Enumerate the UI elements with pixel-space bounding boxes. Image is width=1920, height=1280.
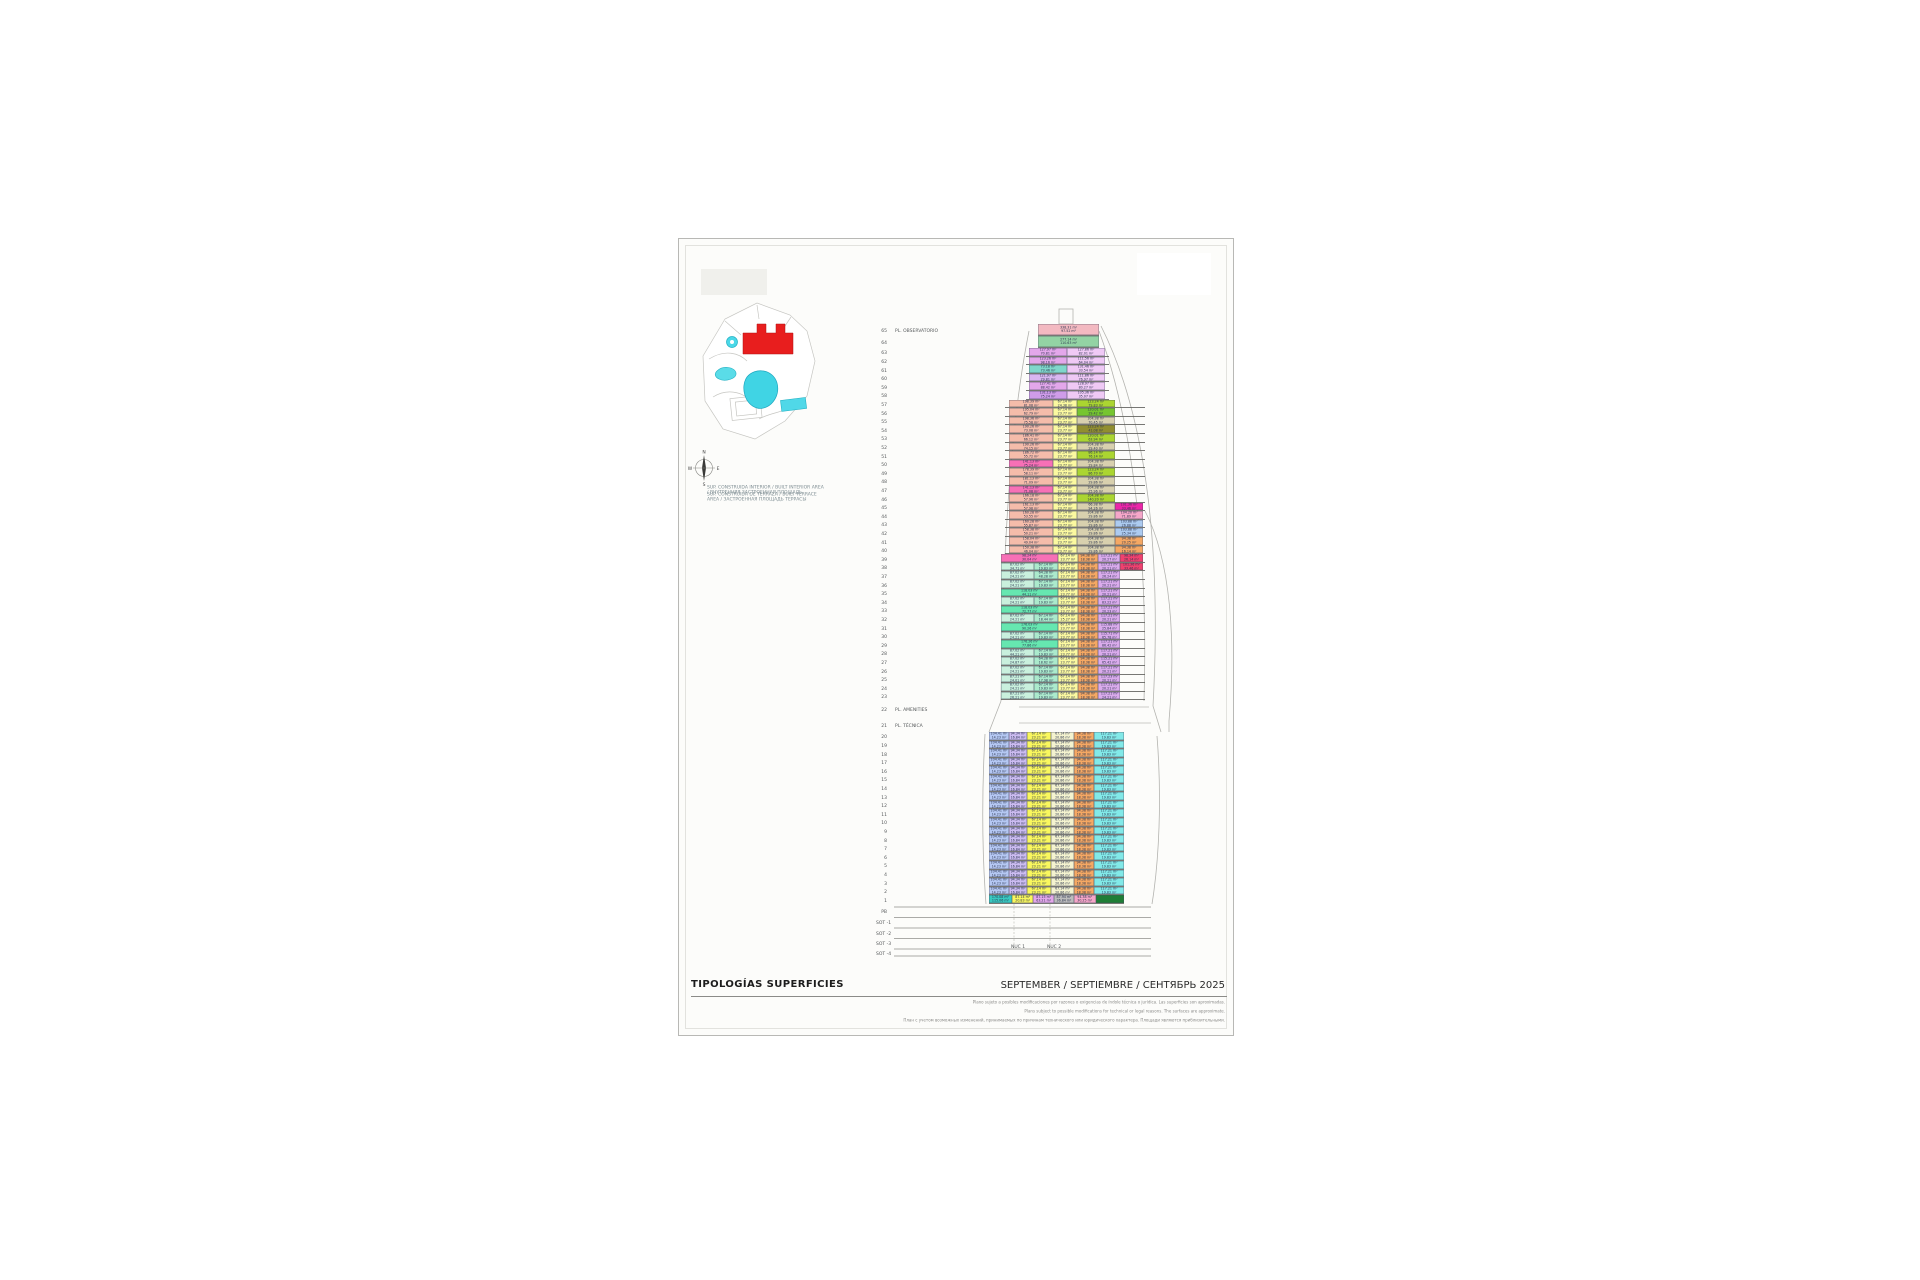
core-label: NUC 1 [1011,945,1025,950]
floor-number: 61 [876,368,887,373]
floor-number: 65 [876,329,887,334]
floor-number: 8 [876,838,887,843]
floor-number: 57 [876,402,887,407]
floor-number: 36 [876,583,887,588]
floor-number: 60 [876,377,887,382]
floor-number: 21 [876,724,887,729]
floor-number: 33 [876,609,887,614]
floor-number: 4 [876,872,887,877]
floor-number: 17 [876,761,887,766]
floor-number: PB [876,910,887,915]
floor-number: 3 [876,881,887,886]
floor-number: 1 [876,898,887,903]
floor-number: 46 [876,497,887,502]
floor-number: 9 [876,829,887,834]
floor-number: 64 [876,341,887,346]
floor-number: 15 [876,778,887,783]
sheet-date-title: SEPTEMBER / SEPTIEMBRE / СЕНТЯБРЬ 2025 [1001,980,1225,991]
floor-number: SOT -1 [876,921,887,926]
floor-number: 39 [876,557,887,562]
floor-number: 40 [876,549,887,554]
floor-number: 30 [876,635,887,640]
screenshot-canvas: { "sheet": { "title_left": "TIPOLOGÍAS S… [0,0,1920,1280]
floor-number: 25 [876,678,887,683]
floor-number: 34 [876,600,887,605]
floor-number: 12 [876,804,887,809]
floor-number: SOT -4 [876,952,887,957]
sheet-title: TIPOLOGÍAS SUPERFICIES [691,979,844,990]
floor-number: 31 [876,626,887,631]
floor-number: 6 [876,855,887,860]
floor-number: 28 [876,652,887,657]
floor-number: 13 [876,795,887,800]
floor-number: 51 [876,454,887,459]
floor-number: 18 [876,752,887,757]
floor-number: 58 [876,394,887,399]
floor-number: 5 [876,864,887,869]
floor-number: 53 [876,437,887,442]
floor-number: 56 [876,411,887,416]
floor-number: 54 [876,428,887,433]
floor-number: SOT -3 [876,942,887,947]
floor-number: 22 [876,708,887,713]
floor-number: 11 [876,812,887,817]
floor-number: 24 [876,686,887,691]
floor-tag: PL. OBSERVATORIO [895,329,938,334]
drawing-sheet: N S E W SUP. CONSTRUIDA INTERIOR / BUILT… [678,238,1234,1036]
floor-number: 38 [876,566,887,571]
floor-tag: PL. AMENITIES [895,708,927,713]
floor-tag: PL. TÉCNICA [895,724,923,729]
title-rule [691,996,1227,997]
floor-number: 48 [876,480,887,485]
floor-number: 26 [876,669,887,674]
floor-number: 45 [876,506,887,511]
floor-number: 20 [876,735,887,740]
floor-number: 42 [876,531,887,536]
disclaimer-line-es: Plano sujeto a posibles modificaciones p… [765,1000,1225,1005]
floor-number: 23 [876,695,887,700]
floor-number: 63 [876,351,887,356]
floor-label-column: 65PL. OBSERVATORIO6463626160595857565554… [679,239,1235,1037]
floor-number: 2 [876,890,887,895]
floor-number: 10 [876,821,887,826]
floor-number: 47 [876,488,887,493]
disclaimer-line-en: Plans subject to possible modifications … [765,1009,1225,1014]
floor-number: 41 [876,540,887,545]
floor-number: 55 [876,420,887,425]
floor-number: 27 [876,660,887,665]
floor-number: 44 [876,514,887,519]
disclaimer-line-ru: План с учетом возможных изменений, прини… [765,1018,1225,1023]
floor-number: 52 [876,445,887,450]
floor-number: 59 [876,385,887,390]
floor-number: 50 [876,463,887,468]
floor-number: 43 [876,523,887,528]
floor-number: 49 [876,471,887,476]
floor-number: 7 [876,847,887,852]
floor-number: SOT -2 [876,931,887,936]
disclaimer-text: Plano sujeto a posibles modificaciones p… [765,1000,1225,1027]
floor-number: 29 [876,643,887,648]
floor-number: 16 [876,769,887,774]
floor-number: 37 [876,574,887,579]
floor-number: 35 [876,592,887,597]
floor-number: 32 [876,617,887,622]
core-label: NUC 2 [1047,945,1061,950]
floor-number: 62 [876,359,887,364]
floor-number: 19 [876,743,887,748]
floor-number: 14 [876,786,887,791]
